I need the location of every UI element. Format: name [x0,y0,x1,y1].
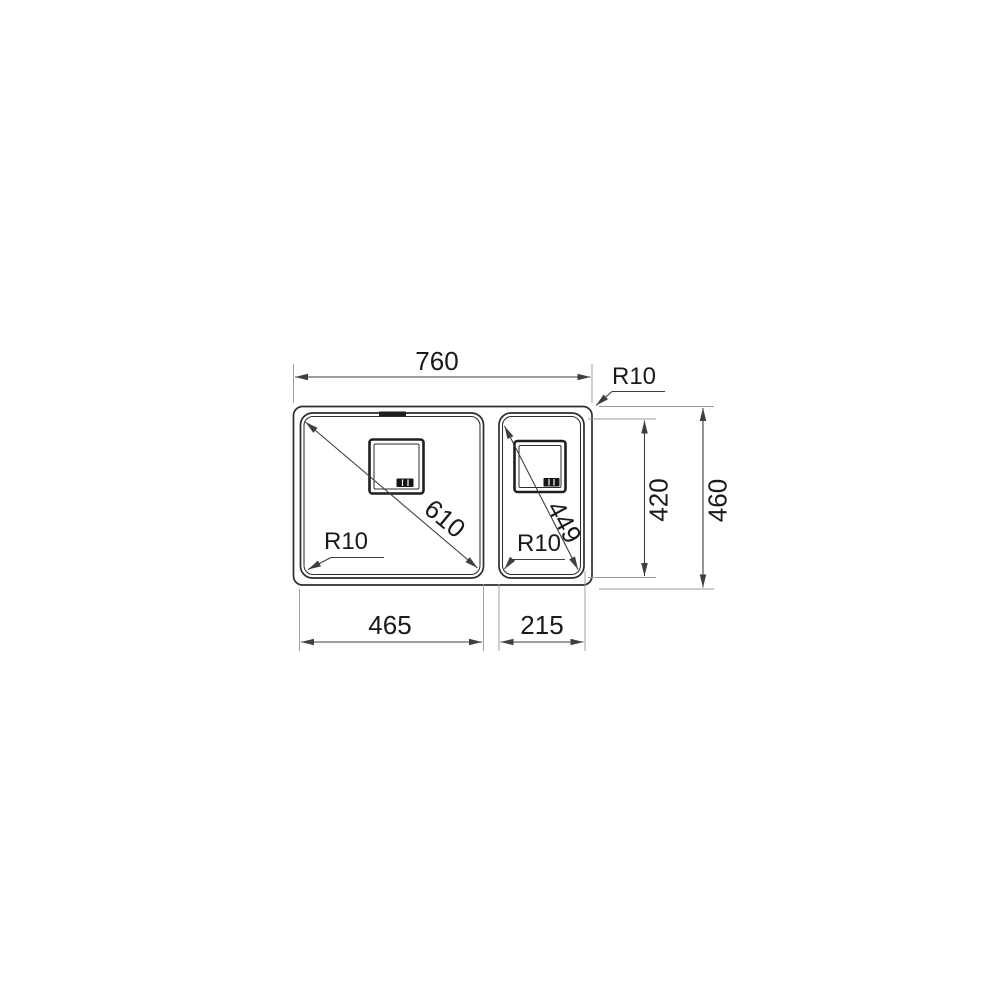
overflow-slot-mark [379,412,406,417]
dim-aux-bowl-width-label: 215 [520,610,563,640]
main-drain-grate [397,479,414,488]
aux-bowl-drain [515,441,566,492]
outer-corner-radius-label: R10 [612,363,656,390]
sink-body [294,407,593,586]
dim-main-bowl-diagonal-label: 610 [419,493,472,544]
dim-aux-bowl-corner-radius: R10 [505,530,566,569]
main-bowl-drain [370,440,424,494]
dim-main-bowl-width: 465 [300,584,484,651]
dim-outer-corner-radius: R10 [596,363,665,406]
dim-overall-depth-label: 460 [703,479,733,522]
dim-aux-bowl-width: 215 [499,571,585,651]
dim-bowl-depth-label: 420 [644,478,674,521]
dim-main-bowl-corner-radius: R10 [308,528,384,570]
technical-drawing-canvas: 760 R10 420 460 610 [0,0,1000,1000]
leader-line [308,558,331,570]
main-bowl-corner-radius-label: R10 [324,528,368,555]
dim-overall-width: 760 [294,346,593,403]
leader-line [596,392,612,406]
aux-drain-grate [544,478,560,487]
dim-main-bowl-width-label: 465 [368,610,411,640]
dim-overall-width-label: 760 [415,346,458,376]
sink-dimension-drawing: 760 R10 420 460 610 [0,0,1000,1000]
sink-outer-edge [294,407,593,586]
dim-bowl-depth: 420 [588,419,674,578]
aux-bowl-corner-radius-label: R10 [517,530,561,557]
leader-line [505,560,513,570]
